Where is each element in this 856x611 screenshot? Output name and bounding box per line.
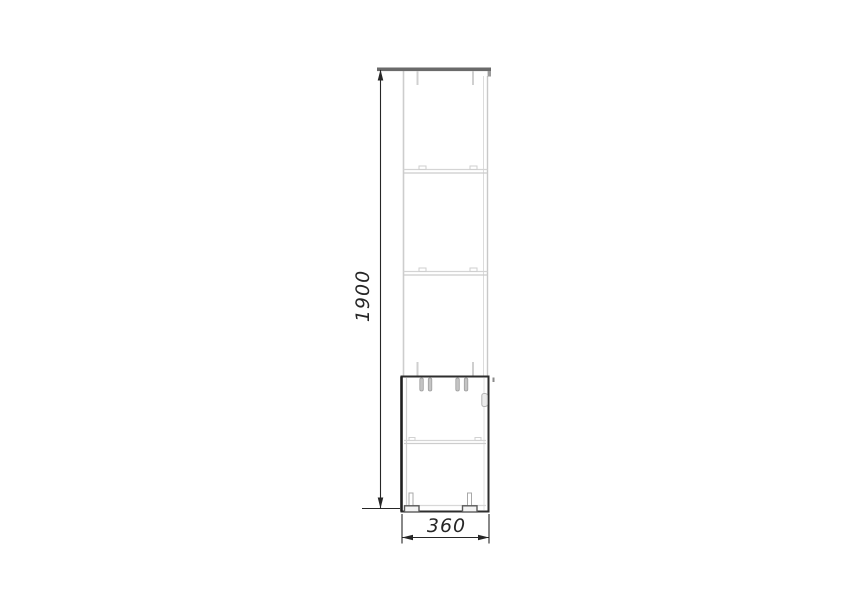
door-handle-icon — [482, 394, 488, 407]
lower-internal-shelf — [404, 438, 486, 444]
shelf-2 — [404, 268, 488, 275]
foot-icon — [405, 506, 420, 512]
dowel-icon — [428, 378, 432, 391]
fitting-mark-icon — [493, 378, 495, 383]
drawing-canvas: 1900 360 — [0, 0, 856, 611]
arrow-up-icon — [378, 70, 384, 81]
dowel-icon — [420, 378, 424, 391]
top-panel — [377, 68, 491, 72]
cabinet-upper-section — [377, 68, 491, 377]
cabinet-drawing: 1900 360 — [0, 0, 856, 611]
cabinet-lower-section — [402, 362, 495, 512]
shelf-pin-icon — [475, 438, 481, 441]
dowel-icon — [456, 378, 460, 391]
height-dimension-label: 1900 — [352, 270, 374, 322]
foot-icon — [463, 506, 478, 512]
height-dimension: 1900 — [352, 70, 400, 509]
shelf-pin-icon — [409, 438, 415, 441]
right-foot — [463, 493, 478, 512]
width-dimension: 360 — [402, 514, 489, 544]
top-panel-right-lip — [488, 71, 491, 77]
arrow-left-icon — [402, 535, 413, 541]
width-dimension-label: 360 — [427, 515, 466, 537]
arrow-down-icon — [378, 498, 384, 509]
foot-pin-icon — [409, 493, 413, 506]
dowel-icon — [464, 378, 468, 391]
arrow-right-icon — [478, 535, 489, 541]
dowel-group — [420, 378, 468, 391]
foot-pin-icon — [468, 493, 472, 506]
shelf-1 — [404, 166, 488, 173]
